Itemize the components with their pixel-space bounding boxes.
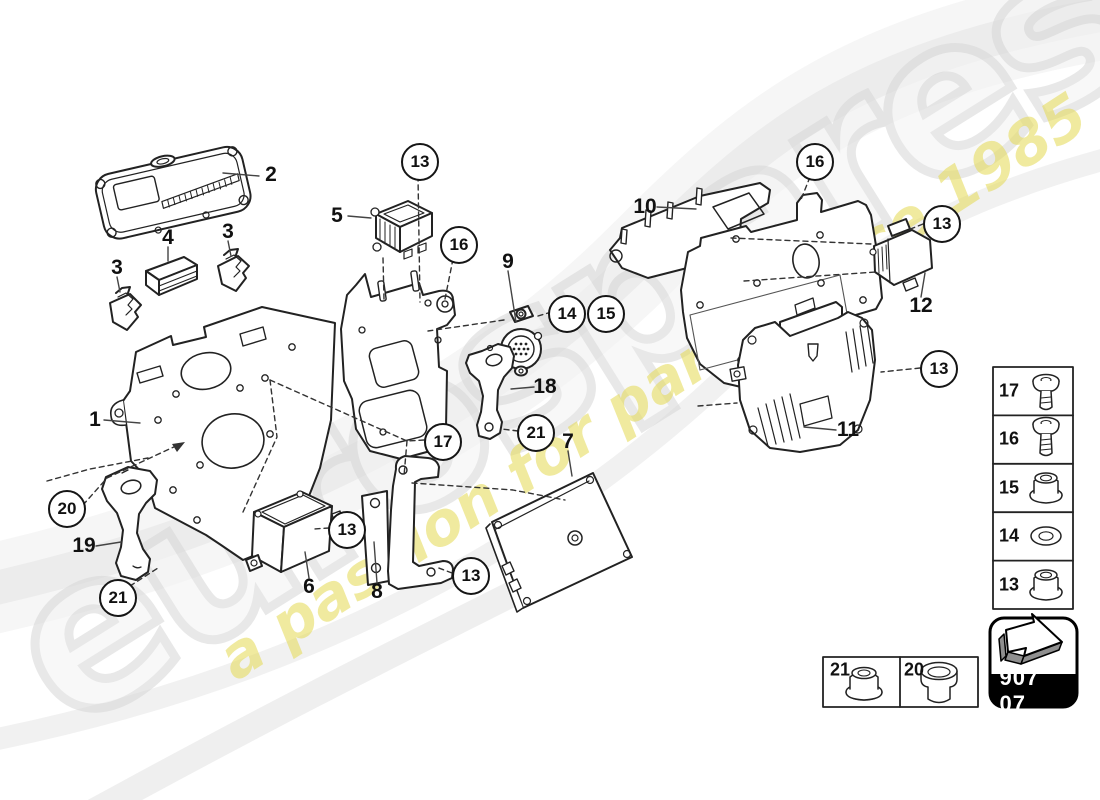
legend-row-16-number[interactable]: 16 xyxy=(999,429,1019,450)
part-5-drawing xyxy=(371,201,432,259)
balloon-13[interactable]: 13 xyxy=(401,143,439,181)
diagram-art xyxy=(0,0,1100,800)
hardware-legend-21-number[interactable]: 21 xyxy=(830,660,850,681)
legend-row-14-number[interactable]: 14 xyxy=(999,526,1019,547)
part-3-drawing-right xyxy=(218,249,249,291)
part-label-10[interactable]: 10 xyxy=(633,195,656,219)
part-label-5[interactable]: 5 xyxy=(331,204,343,228)
balloon-13[interactable]: 13 xyxy=(920,350,958,388)
part-label-2[interactable]: 2 xyxy=(265,163,277,187)
part-label-18[interactable]: 18 xyxy=(533,375,556,399)
balloon-14[interactable]: 14 xyxy=(548,295,586,333)
part-label-3[interactable]: 3 xyxy=(111,256,123,280)
flange-nut-icon xyxy=(1030,570,1062,600)
balloon-20[interactable]: 20 xyxy=(48,490,86,528)
balloon-13[interactable]: 13 xyxy=(452,557,490,595)
part-label-1[interactable]: 1 xyxy=(89,408,101,432)
part-label-3[interactable]: 3 xyxy=(222,220,234,244)
balloon-16[interactable]: 16 xyxy=(440,226,478,264)
legend-row-17-number[interactable]: 17 xyxy=(999,381,1019,402)
parts-diagram-page: eurospares a passion for parts since 198… xyxy=(0,0,1100,800)
part-label-7[interactable]: 7 xyxy=(562,430,574,454)
hardware-legend-20-number[interactable]: 20 xyxy=(904,660,924,681)
balloon-13[interactable]: 13 xyxy=(328,511,366,549)
diagram-code-text: 907 07 xyxy=(1000,665,1067,717)
balloon-21[interactable]: 21 xyxy=(517,414,555,452)
part-label-9[interactable]: 9 xyxy=(502,250,514,274)
part-3-drawing-left xyxy=(110,287,141,330)
part-label-11[interactable]: 11 xyxy=(837,418,859,442)
flange-nut-icon xyxy=(846,668,882,701)
legend-row-13-number[interactable]: 13 xyxy=(999,575,1019,596)
legend-row-15-number[interactable]: 15 xyxy=(999,478,1019,499)
part-label-8[interactable]: 8 xyxy=(371,580,383,604)
balloon-13[interactable]: 13 xyxy=(923,205,961,243)
part-label-6[interactable]: 6 xyxy=(303,575,315,599)
washer-icon xyxy=(1031,527,1061,545)
part-label-19[interactable]: 19 xyxy=(72,534,95,558)
part-label-12[interactable]: 12 xyxy=(909,294,932,318)
balloon-16[interactable]: 16 xyxy=(796,143,834,181)
part-18-drawing xyxy=(466,344,514,439)
balloon-15[interactable]: 15 xyxy=(587,295,625,333)
balloon-17[interactable]: 17 xyxy=(424,423,462,461)
flange-nut-icon xyxy=(1030,473,1062,503)
part-7-drawing xyxy=(486,473,632,612)
part-19-drawing xyxy=(102,467,157,580)
part-label-4[interactable]: 4 xyxy=(162,226,174,250)
balloon-21[interactable]: 21 xyxy=(99,579,137,617)
part-4-drawing xyxy=(146,257,197,295)
